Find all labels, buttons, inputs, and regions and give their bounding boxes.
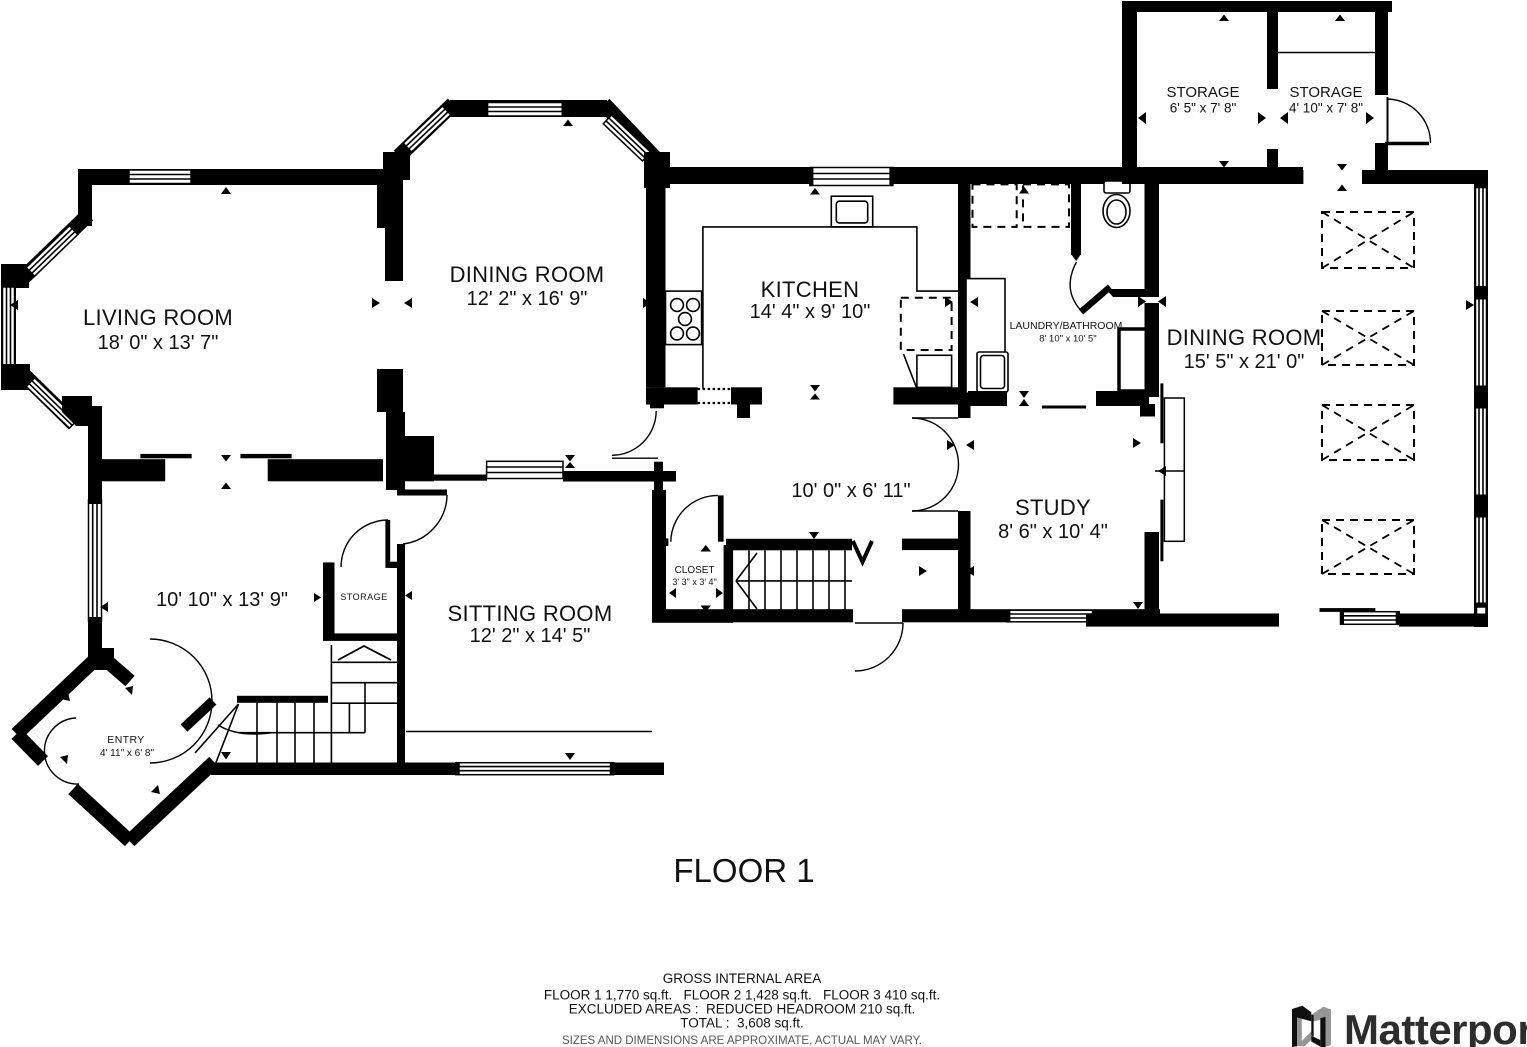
svg-text:10' 0" x 6' 11": 10' 0" x 6' 11" <box>791 480 910 502</box>
svg-text:STORAGE: STORAGE <box>1166 84 1239 101</box>
svg-text:Matterport: Matterport <box>1344 1006 1527 1047</box>
svg-text:4' 10" x 7' 8": 4' 10" x 7' 8" <box>1289 101 1363 116</box>
svg-text:FLOOR 1 1,770 sq.ft. FLOOR 2: FLOOR 1 1,770 sq.ft. FLOOR 2 1,428 sq.ft… <box>544 988 940 1003</box>
svg-text:SIZES AND DIMENSIONS ARE APPRO: SIZES AND DIMENSIONS ARE APPROXIMATE, AC… <box>562 1035 922 1047</box>
svg-text:15' 5" x 21' 0": 15' 5" x 21' 0" <box>1184 351 1305 373</box>
svg-text:12' 2" x 16' 9": 12' 2" x 16' 9" <box>467 288 588 310</box>
svg-text:EXCLUDED AREAS : REDUCED HEAD: EXCLUDED AREAS : REDUCED HEADROOM 210 sq… <box>569 1002 916 1017</box>
svg-text:ENTRY: ENTRY <box>107 734 144 746</box>
svg-text:8' 6" x 10' 4": 8' 6" x 10' 4" <box>998 521 1108 543</box>
svg-text:12' 2" x 14' 5": 12' 2" x 14' 5" <box>470 625 591 647</box>
svg-text:SITTING ROOM: SITTING ROOM <box>448 601 613 626</box>
svg-text:10' 10" x 13' 9": 10' 10" x 13' 9" <box>156 589 288 611</box>
svg-text:18' 0" x 13' 7": 18' 0" x 13' 7" <box>98 332 219 354</box>
svg-text:STORAGE: STORAGE <box>340 592 387 602</box>
svg-text:6' 5" x 7' 8": 6' 5" x 7' 8" <box>1170 101 1237 116</box>
svg-text:4' 11" x 6' 8": 4' 11" x 6' 8" <box>100 748 155 759</box>
svg-text:STORAGE: STORAGE <box>1289 84 1362 101</box>
svg-text:LIVING ROOM: LIVING ROOM <box>83 305 233 330</box>
svg-text:8' 10" x 10' 5": 8' 10" x 10' 5" <box>1039 334 1096 345</box>
svg-text:14' 4" x 9' 10": 14' 4" x 9' 10" <box>750 301 871 323</box>
svg-text:TOTAL : 3,608 sq.ft.: TOTAL : 3,608 sq.ft. <box>680 1016 804 1031</box>
svg-text:3' 3" x 3' 4": 3' 3" x 3' 4" <box>672 577 716 587</box>
svg-text:GROSS INTERNAL AREA: GROSS INTERNAL AREA <box>663 971 822 986</box>
svg-text:DINING ROOM: DINING ROOM <box>450 262 605 287</box>
svg-text:KITCHEN: KITCHEN <box>761 277 860 302</box>
svg-text:STUDY: STUDY <box>1015 495 1091 520</box>
svg-text:CLOSET: CLOSET <box>675 565 715 576</box>
svg-text:DINING ROOM: DINING ROOM <box>1167 325 1322 350</box>
svg-text:FLOOR 1: FLOOR 1 <box>673 852 814 889</box>
svg-text:LAUNDRY/BATHROOM: LAUNDRY/BATHROOM <box>1010 320 1123 332</box>
